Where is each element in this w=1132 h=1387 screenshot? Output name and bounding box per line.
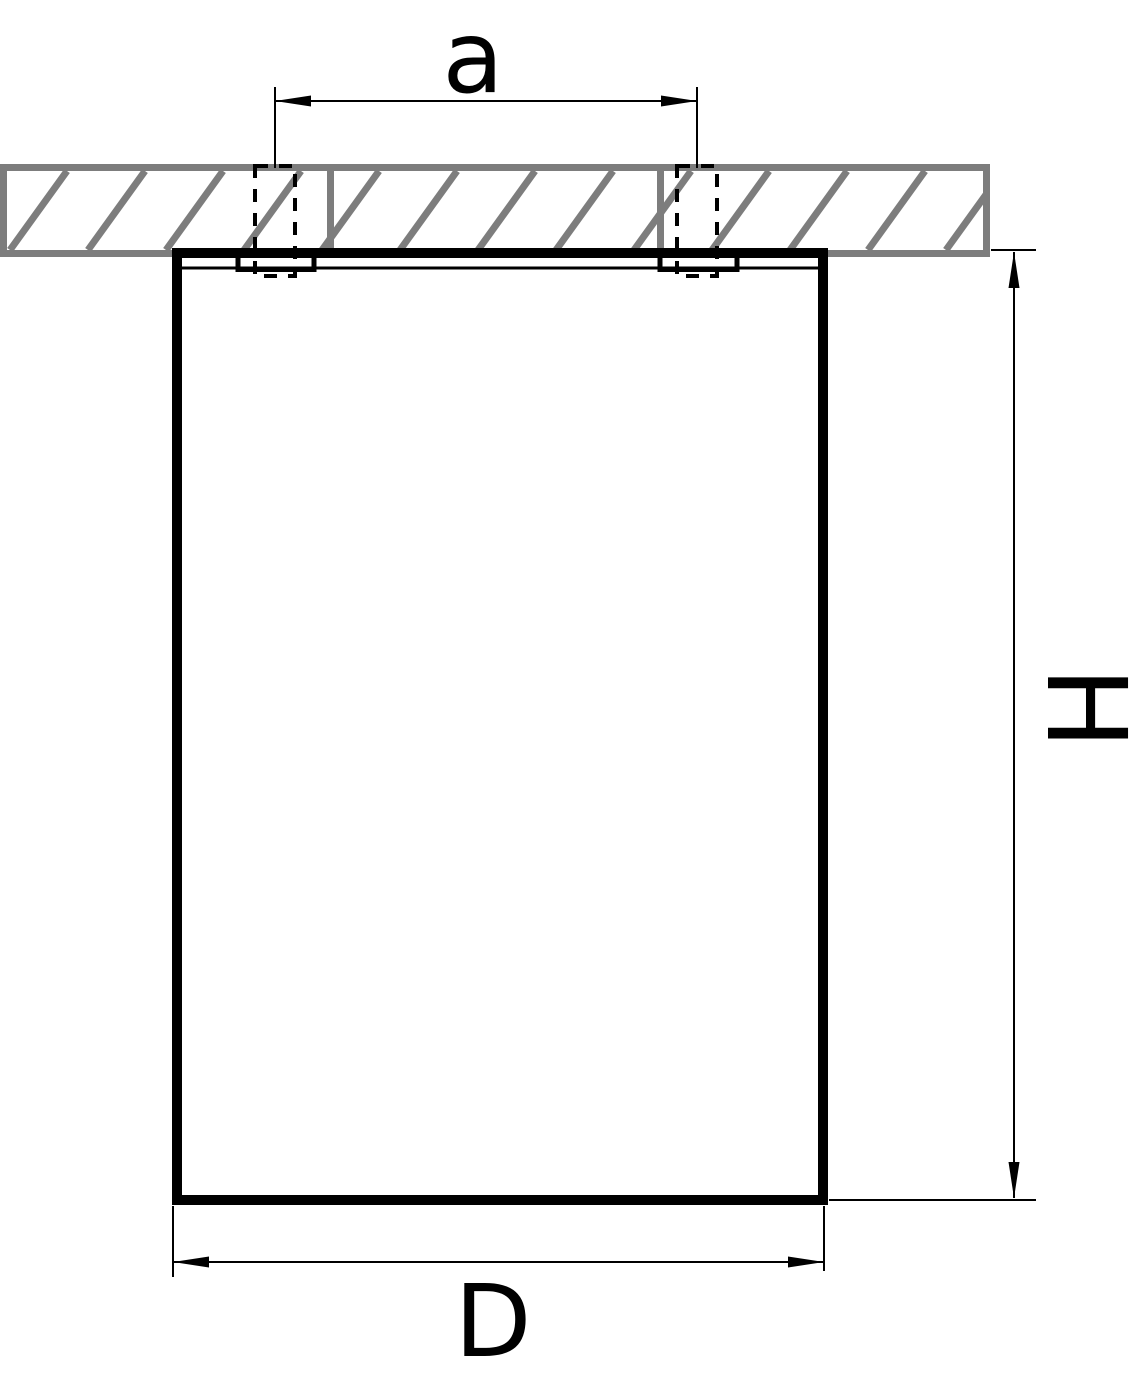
dim-h-arrow-bottom — [1009, 1162, 1020, 1198]
dimension-h — [829, 250, 1036, 1200]
dim-label-width: D — [423, 1272, 563, 1372]
dim-label-hole-spacing: a — [403, 8, 543, 108]
dim-d-arrow-left — [173, 1257, 209, 1268]
dim-h-arrow-top — [1009, 252, 1020, 288]
dim-label-height: H — [1028, 646, 1132, 770]
dimension-drawing — [0, 0, 1132, 1387]
dim-d-arrow-right — [788, 1257, 824, 1268]
ceiling-slab — [4, 167, 987, 254]
dim-a-arrow-right — [661, 96, 697, 107]
dim-a-arrow-left — [275, 96, 311, 107]
drawing-canvas: a H D — [0, 0, 1132, 1387]
ceiling-hatch-fill — [7, 171, 983, 250]
fixture-body — [177, 253, 823, 1200]
